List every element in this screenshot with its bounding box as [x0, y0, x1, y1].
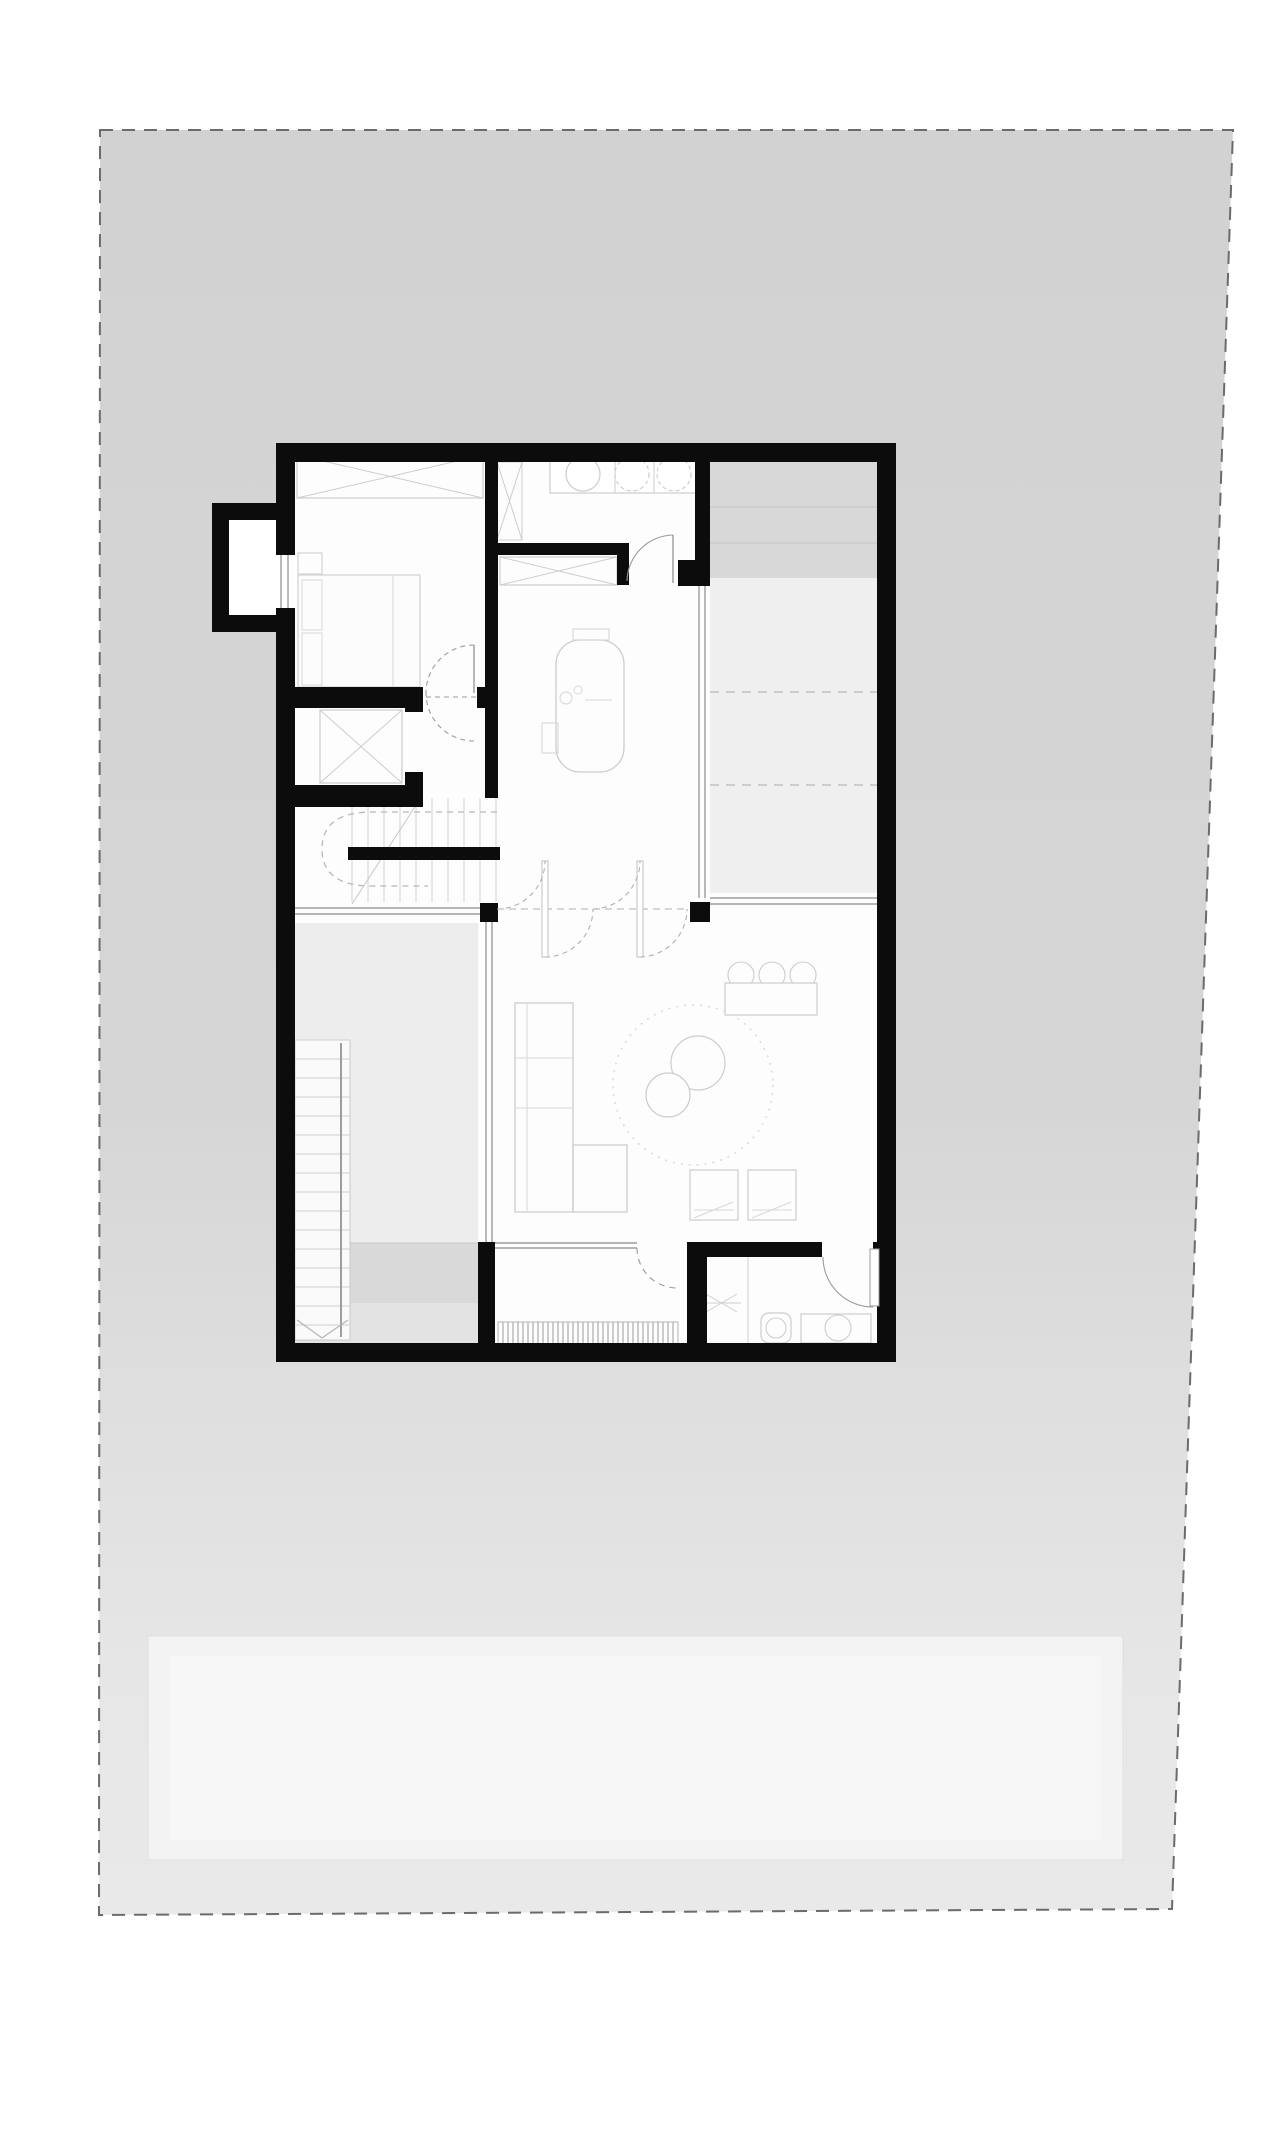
balcony-floor	[229, 520, 276, 615]
wall-bottom	[276, 1343, 896, 1362]
coffee-table-small	[646, 1073, 690, 1117]
wall-kitchen-closet	[497, 543, 622, 555]
garden-terrace-inner	[170, 1656, 1101, 1840]
wall-stair-guard	[348, 847, 500, 860]
wall-left-upper	[276, 443, 295, 555]
hall-door-leaf-2	[637, 861, 643, 957]
terrace-steps	[710, 462, 877, 578]
wall-vestibule-west	[478, 1242, 495, 1362]
balcony-wall-bottom	[212, 615, 276, 632]
balcony-window-gap	[276, 555, 295, 608]
jamb-closet-upper	[405, 687, 423, 712]
wall-wc-west	[687, 1242, 707, 1362]
wall-bedroom-office-upper	[485, 455, 498, 687]
wall-left-lower	[276, 608, 295, 1362]
jamb-closet-lower	[405, 772, 423, 807]
post-bedroom-door	[477, 687, 498, 708]
wall-wc-north	[687, 1242, 822, 1257]
wall-right	[877, 443, 896, 1362]
hall-door-leaf-1	[542, 861, 548, 957]
wall-kitchen-east	[695, 443, 710, 560]
wall-bedroom-south	[295, 687, 423, 708]
balcony-wall-left	[212, 503, 229, 632]
wall-top	[276, 443, 896, 462]
dining-console	[725, 983, 817, 1015]
wall-kitchen-foot	[678, 560, 710, 586]
bed	[298, 575, 420, 687]
wc-door-leaf	[870, 1249, 879, 1306]
site-plan-page	[0, 0, 1280, 2131]
wall-bedroom-office-lower	[485, 708, 498, 798]
pillar-terrace	[690, 902, 710, 922]
floor-plan-drawing	[0, 0, 1280, 2131]
pillar-patio	[480, 903, 498, 922]
wall-closet-south	[295, 785, 423, 807]
